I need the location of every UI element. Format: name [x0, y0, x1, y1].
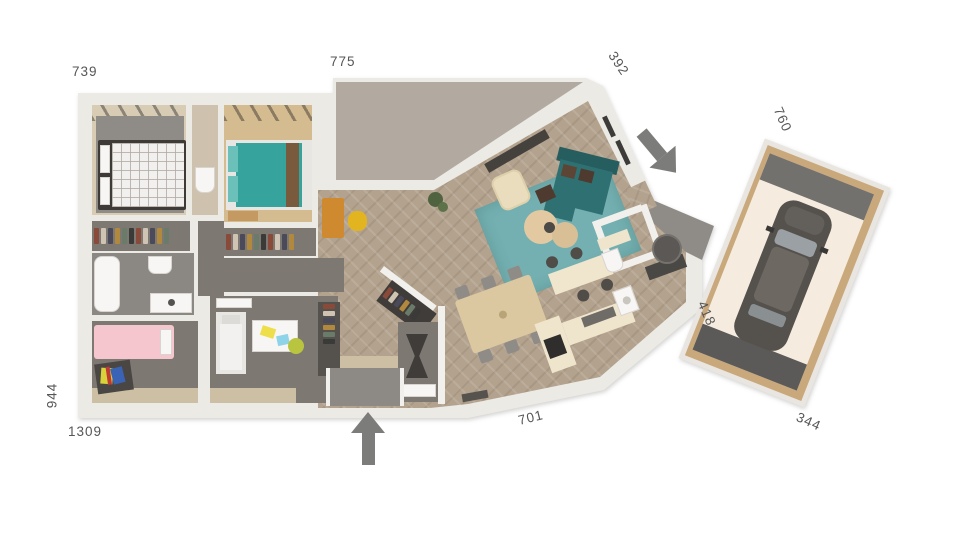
wc-floor: [192, 105, 218, 215]
water-heater: [652, 234, 682, 264]
front-porch: [326, 368, 404, 406]
car-roof: [752, 245, 810, 314]
kids-room-1-floor: [92, 321, 198, 403]
corridor: [224, 258, 344, 292]
vestibule-wall: [438, 306, 445, 404]
toilet: [195, 167, 215, 193]
toilet: [148, 256, 172, 274]
bench: [400, 384, 436, 397]
bar-stool: [544, 255, 559, 270]
door-sill: [340, 356, 398, 368]
kids-room-2-floor: [210, 296, 338, 403]
kids-bed-white: [216, 312, 246, 374]
vestibule-floor: [398, 322, 438, 402]
bedroom-1-floor: [92, 105, 186, 215]
tray: [544, 222, 555, 233]
floorplan-canvas: 739 775 392 760 418 944 1309 701 344: [0, 0, 960, 540]
table-decor: [498, 310, 508, 320]
paper: [260, 325, 276, 339]
pillow: [228, 176, 238, 202]
wardrobe: [318, 302, 340, 376]
console-desk: [322, 198, 344, 238]
coffee-table: [552, 222, 578, 248]
pillow: [228, 146, 238, 172]
coat-stand: [406, 334, 428, 378]
desk-chair: [288, 338, 304, 354]
bed-duvet-plaid: [112, 143, 184, 207]
front-entrance-arrow-icon: [351, 412, 385, 465]
ceiling-beams: [224, 105, 312, 121]
bedroom-2-floor: [224, 105, 312, 222]
floor-strip: [210, 388, 296, 403]
bed-throw: [286, 143, 299, 207]
kids-desk: [94, 360, 134, 395]
corridor: [198, 221, 224, 296]
pillow: [160, 329, 172, 355]
bench: [228, 211, 258, 221]
bathroom-floor: [92, 253, 194, 315]
dim-944: 944: [45, 374, 60, 418]
faucet: [168, 299, 175, 306]
dim-1309: 1309: [68, 424, 102, 439]
bathtub: [94, 256, 120, 312]
pillow: [100, 145, 110, 173]
poster: [110, 366, 126, 384]
dim-775: 775: [330, 54, 356, 69]
garage: [678, 138, 890, 407]
closet-2: [224, 228, 316, 256]
closet-1: [92, 221, 190, 251]
pillow: [100, 177, 110, 205]
pillow: [222, 315, 240, 324]
fridge-decor: [622, 295, 632, 305]
dim-739: 739: [72, 64, 98, 79]
yellow-chair: [348, 211, 367, 231]
plant: [438, 202, 448, 212]
duvet: [220, 324, 242, 370]
bar-stool: [569, 246, 584, 261]
wall-shelf: [216, 298, 252, 308]
